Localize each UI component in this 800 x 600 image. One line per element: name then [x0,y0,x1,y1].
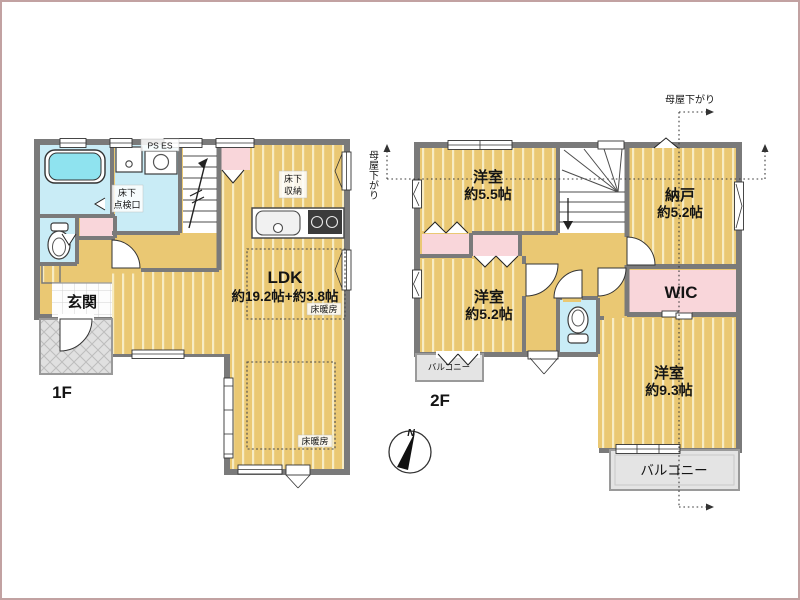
room-top-left-size: 約5.5帖 [464,186,511,202]
closet-2f-left [422,234,470,256]
room-bottom-right-size: 約9.3帖 [645,382,692,398]
floor-1f-label: 1F [52,383,72,402]
underfloor-hatch-label-2: 点検口 [113,199,140,210]
balcony-left-label: バルコニー [428,362,470,372]
underfloor-hatch-label-1: 床下 [118,187,136,198]
room-top-left-name: 洋室 [473,168,503,186]
ldk-size-label: 約19.2帖+約3.8帖 [232,288,339,304]
floor-heating-label-upper: 床暖房 [310,304,337,315]
roof-lowered-left-label: 母屋下がり [367,150,379,200]
floor-plan-1f: PS ES 床下 点検口 床下 収納 LDK 約19.2帖+約3.8帖 床暖房 … [37,139,351,489]
kitchen-counter-icon [252,208,344,238]
stove-icon [308,210,342,234]
compass-north-label: N [407,427,415,439]
washbasin-icon [116,147,142,172]
underfloor-storage-label-2: 収納 [284,185,302,196]
shoe-cabinet [42,265,60,283]
floor-plan-2f: 洋室 約5.5帖 納戸 約5.2帖 洋室 約5.2帖 WIC 洋室 約9.3帖 … [413,138,744,490]
ldk-name-label: LDK [268,268,304,287]
floor-plan-page: PS ES 床下 点検口 床下 収納 LDK 約19.2帖+約3.8帖 床暖房 … [0,0,800,600]
closet-2f-right [472,234,520,256]
storage-room-size: 約5.2帖 [657,204,703,220]
room-mid-left-name: 洋室 [474,288,504,306]
pipe-space-label: PS ES [147,141,172,151]
storage-room-name: 納戸 [665,186,695,204]
closet-linen [80,218,115,238]
balcony-bottom-label: バルコニー [640,463,707,478]
wic-label: WIC [664,283,697,302]
compass-icon: N [389,427,431,473]
room-mid-left-size: 約5.2帖 [465,306,512,322]
underfloor-storage-label-1: 床下 [284,173,302,184]
floor-plan-drawing: PS ES 床下 点検口 床下 収納 LDK 約19.2帖+約3.8帖 床暖房 … [2,2,800,600]
toilet-icon-2f [568,307,588,343]
washing-machine-icon [145,151,177,174]
bathtub-icon [45,150,105,183]
closet-1f [220,147,250,170]
floor-2f-label: 2F [430,391,450,410]
roof-lowered-top-label: 母屋下がり [665,93,715,106]
floor-heating-label-lower: 床暖房 [301,436,328,447]
entrance-label: 玄関 [67,293,97,311]
